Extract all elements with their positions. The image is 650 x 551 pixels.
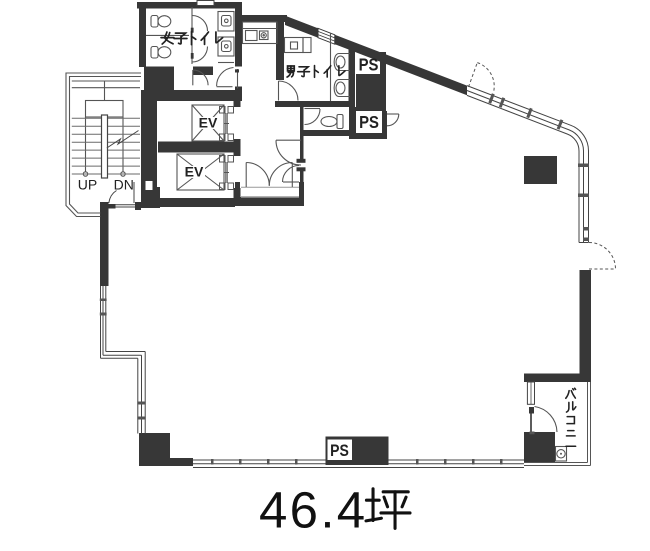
svg-text:PS: PS [330,442,349,460]
svg-text:PS: PS [359,55,379,74]
svg-text:UP: UP [78,177,97,193]
svg-text:EV: EV [185,164,204,180]
svg-text:DN: DN [114,177,134,193]
svg-text:PS: PS [359,113,379,132]
svg-text:46.4: 46.4 [259,482,367,539]
svg-text:EV: EV [199,115,218,131]
